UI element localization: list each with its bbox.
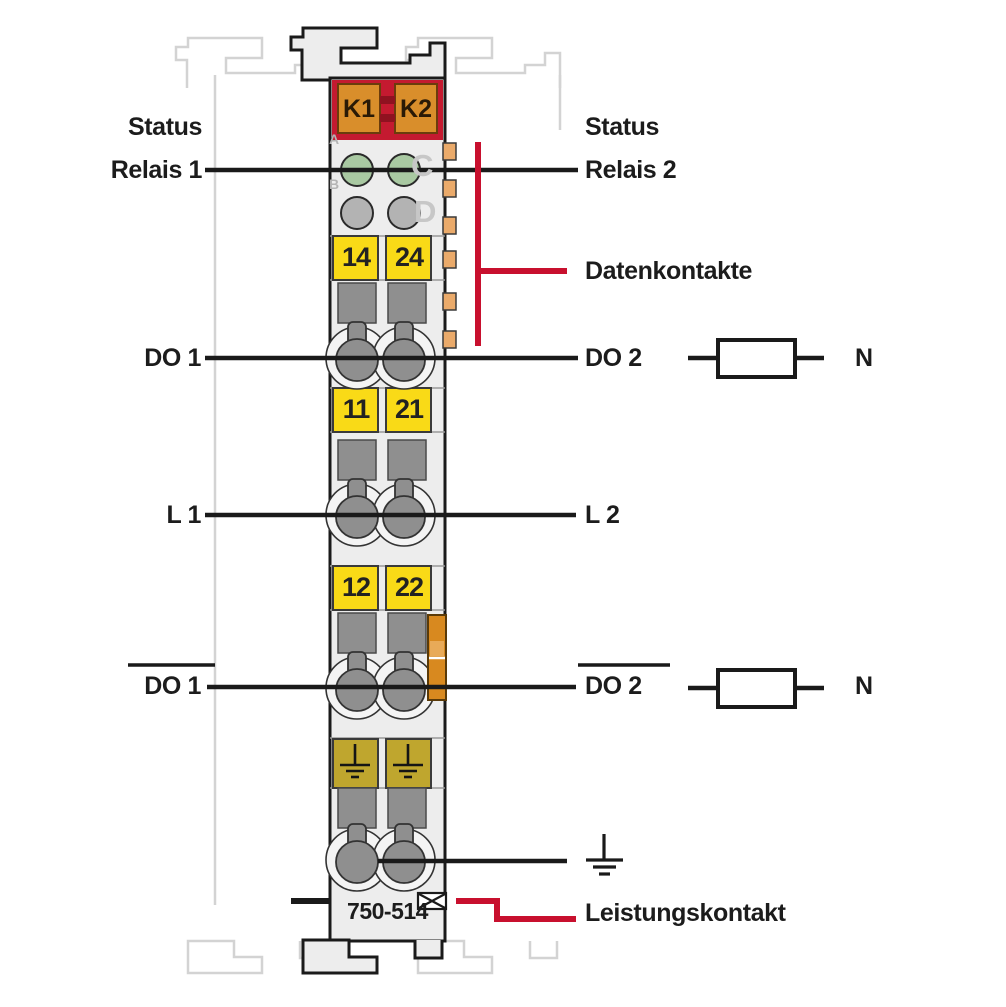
earth-ground-symbol [586, 834, 623, 874]
status-relais1-label-line2: Relais 1 [60, 155, 202, 185]
top-mounting-profile [291, 28, 445, 80]
terminal-24: 24 [386, 242, 432, 273]
status-relais2-label-line2: Relais 2 [585, 155, 676, 185]
terminal-11: 11 [333, 394, 379, 425]
load-symbol-upper [688, 340, 824, 377]
bottom-foot-right [415, 940, 442, 958]
led-a-label: A [329, 131, 339, 147]
red-annotation-lines [456, 142, 576, 919]
status-relais2-label-line1: Status [585, 112, 659, 142]
k1-label: K1 [338, 95, 380, 124]
terminal-22: 22 [386, 572, 432, 603]
wiring-diagram-750-514: Status Relais 1 DO 1 L 1 DO 1 Status Rel… [0, 0, 1006, 1007]
led-b-label: B [329, 176, 339, 192]
do2-inverted-label: DO 2 [585, 671, 642, 701]
datenkontakte-pointer [478, 142, 567, 346]
bottom-foot-left [303, 940, 377, 973]
leistungskontakt-pointer [456, 901, 576, 919]
led-d-label: D [414, 194, 436, 230]
leistungskontakt-label: Leistungskontakt [585, 898, 786, 928]
led-c-label: C [411, 148, 433, 184]
do2-label: DO 2 [585, 343, 642, 373]
led-b-gray [341, 197, 373, 229]
model-number: 750-514 [330, 898, 445, 925]
terminal-21: 21 [386, 394, 432, 425]
l1-label: L 1 [60, 500, 201, 530]
n-lower-label: N [855, 671, 873, 701]
terminal-12: 12 [333, 572, 379, 603]
k2-label: K2 [395, 95, 437, 124]
load-symbol-lower [688, 670, 824, 707]
status-relais1-label-line1: Status [60, 112, 202, 142]
do1-inverted-label: DO 1 [60, 671, 201, 701]
l2-label: L 2 [585, 500, 619, 530]
datenkontakte-label: Datenkontakte [585, 256, 752, 286]
n-upper-label: N [855, 343, 873, 373]
do1-label: DO 1 [60, 343, 201, 373]
terminal-14: 14 [333, 242, 379, 273]
